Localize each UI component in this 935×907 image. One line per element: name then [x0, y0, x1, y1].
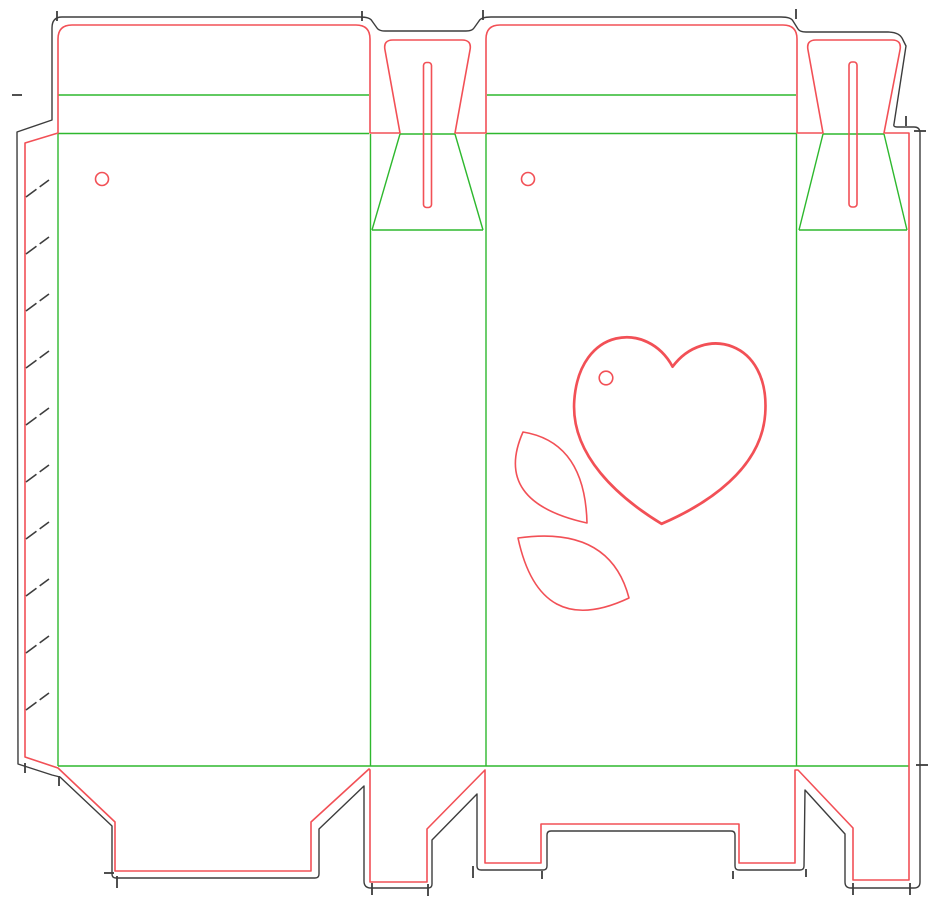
blank-perimeter-cut [25, 25, 909, 882]
hatch-mark [26, 408, 49, 425]
crease-lines [58, 95, 909, 766]
dieline-canvas [0, 0, 935, 907]
bleed-outline [17, 17, 920, 888]
hatch-mark [26, 465, 49, 482]
glue-flap-hatching [26, 180, 49, 710]
leaf-cutout-upper [515, 432, 587, 523]
nick-marks [12, 9, 928, 896]
hatch-mark [26, 237, 49, 254]
cut-lines [25, 25, 909, 882]
tab1-gusset-right [455, 134, 483, 230]
hatch-mark [26, 522, 49, 539]
hatch-mark [26, 294, 49, 311]
hatch-mark [26, 351, 49, 368]
hole-heart [599, 371, 613, 385]
hatch-mark [26, 693, 49, 710]
tab2-gusset-left [799, 134, 823, 230]
tab2-gusset-right [884, 134, 907, 230]
hole-back-panel [522, 173, 535, 186]
hatch-mark [26, 579, 49, 596]
leaf-cutout-lower [518, 536, 629, 610]
tab1-gusset-left [372, 134, 400, 230]
hatch-mark [26, 180, 49, 197]
dieline-drawing [0, 0, 935, 907]
hole-front-panel [96, 173, 109, 186]
heart-cutout [566, 334, 770, 531]
bleed-outline-path [17, 17, 920, 888]
hatch-mark [26, 636, 49, 653]
lock-slot-1 [424, 63, 432, 208]
